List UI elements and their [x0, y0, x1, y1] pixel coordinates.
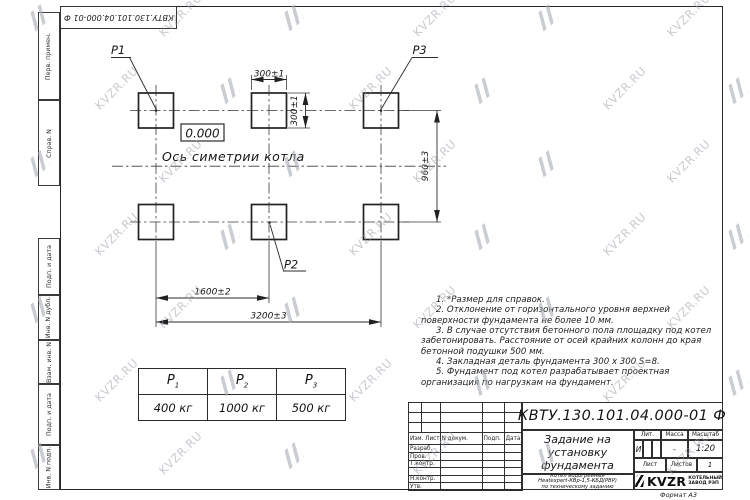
- row-utv: Утв.: [409, 483, 441, 491]
- title-line: фундамента: [541, 459, 614, 472]
- sheet-label: Лист: [634, 458, 666, 472]
- signature-header-row: Изм. Лист N докум. Подп. Дата: [409, 433, 523, 445]
- pad-label-p3: P3: [413, 43, 427, 57]
- scale-value: 1:20: [688, 440, 723, 458]
- lit-value: И: [634, 440, 643, 458]
- kvzr-logo: KVZR КОТЕЛЬНЫЙ ЗАВОД РЭП: [634, 472, 723, 490]
- format-label: Формат А3: [634, 491, 723, 499]
- kvzr-logo-text: KVZR: [647, 474, 686, 489]
- pad-label-p1: P1: [111, 43, 125, 57]
- lit-cell-2: [643, 440, 652, 458]
- kvzr-logo-caption: КОТЕЛЬНЫЙ ЗАВОД РЭП: [688, 476, 722, 486]
- note-4: 4. Закладная деталь фундамента 300 x 300…: [421, 357, 720, 367]
- drawing-sheet: КВТУ.130.101.04.000-01 Ф Перв. примен. С…: [0, 0, 750, 500]
- note-1: 1. *Размер для справок.: [421, 295, 720, 305]
- sheets-label: Листов: [666, 458, 697, 472]
- load-table-header-p3: P3: [277, 369, 346, 395]
- dim-pad-width: 300±1: [254, 70, 284, 80]
- lit-cell-3: [652, 440, 661, 458]
- kvzr-logo-icon: [635, 475, 645, 487]
- title-line: Задание на: [544, 433, 611, 446]
- symmetry-axis-label: Ось симетрии котла: [162, 149, 305, 164]
- col-podp: Подп.: [482, 433, 504, 445]
- elevation-mark: 0.000: [185, 127, 220, 141]
- note-3: 3. В случае отсутствия бетонного пола пл…: [421, 326, 720, 357]
- col-izm-list: Изм. Лист: [409, 433, 441, 445]
- sheets-value: 1: [697, 458, 723, 472]
- load-table-header-row: P1 P2 P3: [139, 369, 346, 395]
- logo-caption-line: ЗАВОД РЭП: [688, 481, 722, 486]
- row-razrab: Разраб.: [409, 445, 441, 453]
- note-2: 2. Отклонение от горизонтального уровня …: [421, 305, 720, 326]
- row-tkontr: Т.контр.: [409, 461, 441, 468]
- load-value-p1: 400 кг: [139, 395, 208, 421]
- mass-label: Масса: [661, 430, 688, 440]
- dim-total-span: 3200±3: [250, 312, 286, 322]
- scale-label: Масштаб: [688, 430, 723, 440]
- load-value-p2: 1000 кг: [208, 395, 277, 421]
- pad-label-p2: P2: [284, 258, 298, 272]
- row-prov: Пров.: [409, 453, 441, 461]
- title-line: установку: [548, 446, 607, 459]
- load-value-p3: 500 кг: [277, 395, 346, 421]
- col-doc: N докум.: [440, 433, 482, 445]
- mass-value: -: [661, 440, 688, 458]
- drawing-title: Задание на установку фундамента: [521, 430, 634, 474]
- row-nkontr: Н.контр.: [409, 476, 441, 483]
- dim-pad-height: 300±1: [290, 95, 300, 125]
- note-5: 5. Фундамент под котел разрабатывает про…: [421, 367, 720, 388]
- doc-number: КВТУ.130.101.04.000-01 Ф: [521, 402, 723, 430]
- dim-row-spacing: 960±3: [421, 151, 431, 182]
- lit-label: Лит.: [634, 430, 661, 440]
- load-table-header-p1: P1: [139, 369, 208, 395]
- col-data: Дата: [504, 433, 522, 445]
- technical-notes: 1. *Размер для справок. 2. Отклонение от…: [421, 295, 720, 388]
- title-block: Изм. Лист N докум. Подп. Дата Разраб. Пр…: [408, 402, 723, 490]
- centerlines: [112, 85, 446, 246]
- product-name: Котел водогрейный Heatexpert-КВр-1,5-КБД…: [521, 474, 634, 490]
- load-table-header-p2: P2: [208, 369, 277, 395]
- title-block-signature-table: Изм. Лист N докум. Подп. Дата Разраб. Пр…: [408, 402, 523, 491]
- load-table: P1 P2 P3 400 кг 1000 кг 500 кг: [138, 368, 346, 421]
- dim-col-spacing: 1600±2: [194, 288, 230, 298]
- product-line: по техническому заданию: [541, 485, 613, 491]
- load-table-value-row: 400 кг 1000 кг 500 кг: [139, 395, 346, 421]
